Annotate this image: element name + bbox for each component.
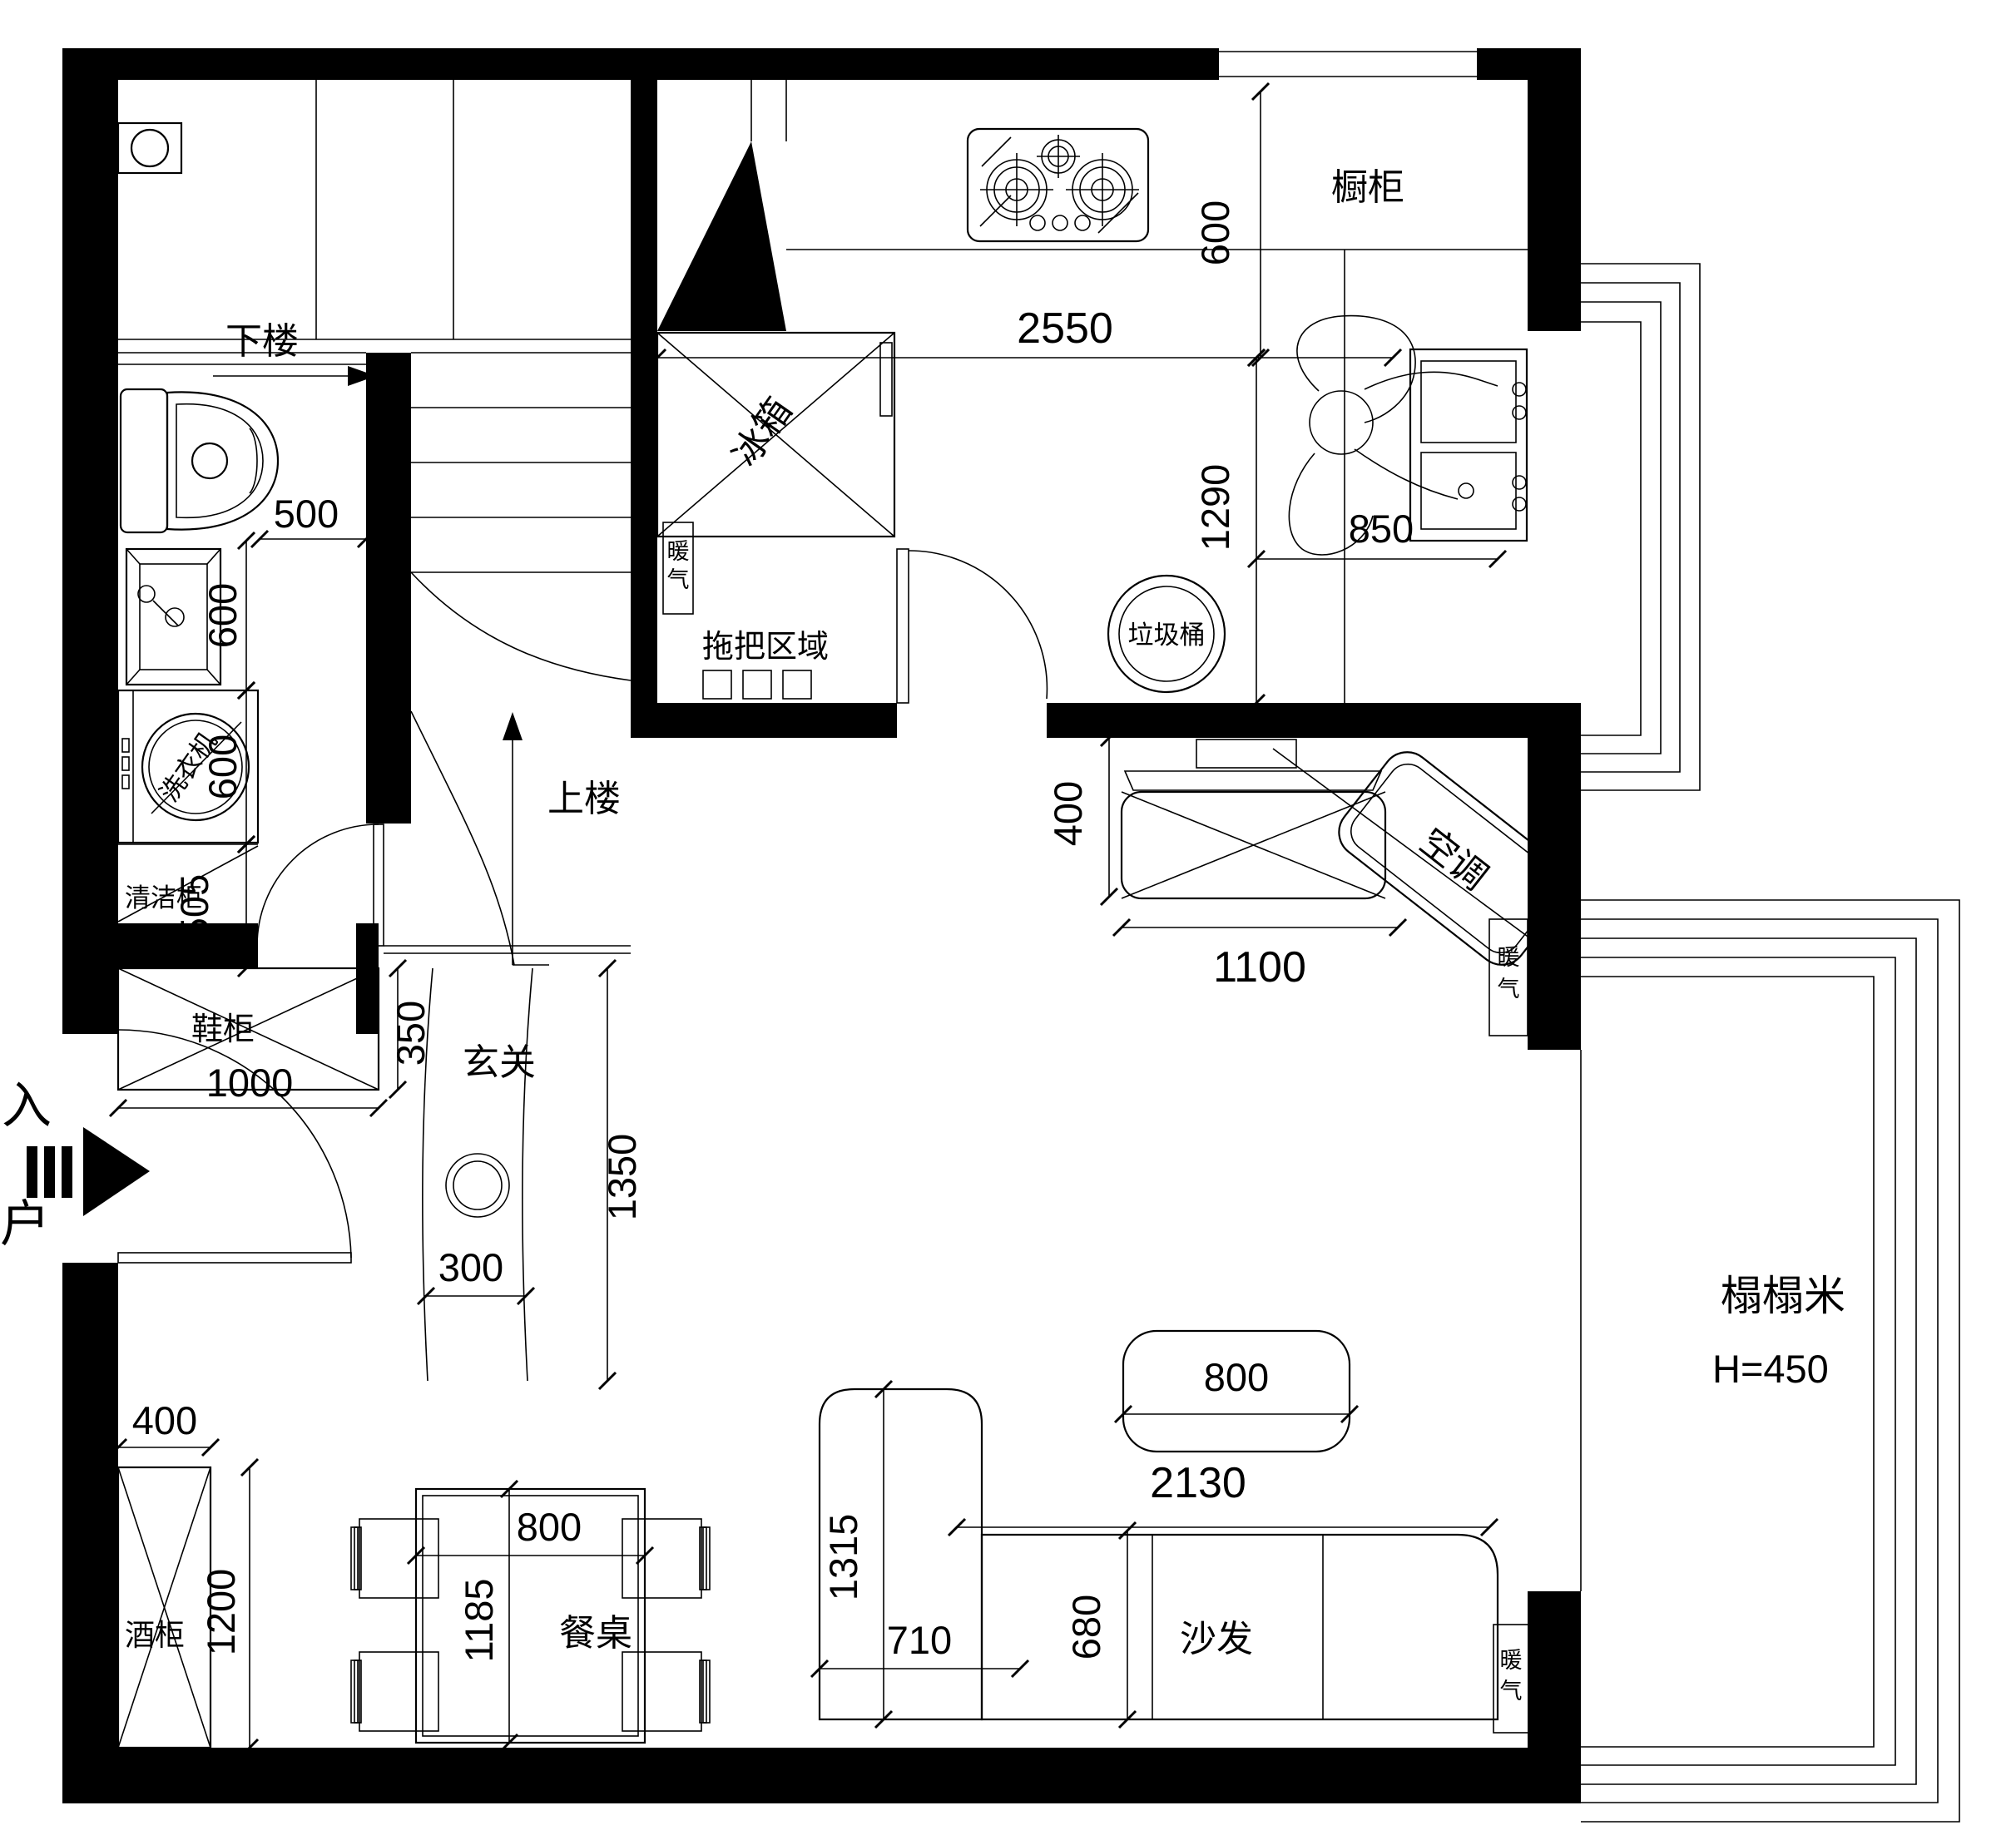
entry-char-2: 户 xyxy=(0,1196,50,1252)
dim-chaise-1315: 1315 xyxy=(821,1381,892,1728)
svg-text:800: 800 xyxy=(517,1505,582,1549)
toilet xyxy=(121,389,278,532)
dim-shoe-1000: 1000 xyxy=(110,1061,387,1116)
tv-unit xyxy=(1122,739,1385,898)
dining-chairs xyxy=(351,1519,710,1731)
wall-right-upper-column xyxy=(1528,80,1581,331)
kitchen-door xyxy=(897,549,1047,703)
tatami-label: 榻榻米 xyxy=(1721,1273,1845,1319)
dim-foyer-1350: 1350 xyxy=(599,960,644,1389)
floor-plan-page: 下楼 上楼 xyxy=(0,0,2016,1845)
wall-top xyxy=(62,48,1219,80)
radiator-label: 暖 xyxy=(667,539,690,564)
wall-kitchen-south-left xyxy=(631,703,897,738)
stairs-down-arrow xyxy=(213,366,376,386)
dim-tv-1100: 1100 xyxy=(1113,919,1406,992)
wall-right-lower-stub xyxy=(1528,1591,1581,1748)
stairs-down-label: 下楼 xyxy=(225,321,299,362)
kitchen-corner-shade xyxy=(657,141,786,331)
kitchen-bay-window xyxy=(1581,264,1700,790)
dim-sofa-2130: 2130 xyxy=(949,1459,1498,1536)
foyer-console: 玄关 xyxy=(423,968,536,1381)
skylight-circle xyxy=(131,130,168,166)
svg-text:800: 800 xyxy=(1204,1355,1269,1399)
kitchen-sink xyxy=(1410,349,1527,541)
radiator-label: 气 xyxy=(667,567,690,592)
dim-foyer-300: 300 xyxy=(418,1245,534,1304)
svg-text:2130: 2130 xyxy=(1150,1459,1246,1507)
shoe-cabinet-label: 鞋柜 xyxy=(191,1012,255,1047)
floor-plan-drawing: 下楼 上楼 xyxy=(0,0,2016,1845)
wall-bath-south xyxy=(62,923,258,968)
wall-left-upper xyxy=(62,80,118,1034)
svg-text:680: 680 xyxy=(1064,1595,1108,1660)
dim-sofa-680: 680 xyxy=(1064,1522,1136,1728)
tatami-height-label: H=450 xyxy=(1712,1347,1829,1391)
wall-foyer-stub xyxy=(356,923,379,1034)
svg-text:600: 600 xyxy=(201,583,245,648)
tatami-room: 榻榻米 H=450 xyxy=(1712,1273,1845,1391)
wall-left-lower xyxy=(62,1263,118,1748)
entry-char-1: 入 xyxy=(2,1078,52,1134)
stair-winder-arc-1 xyxy=(411,572,631,680)
wall-right-mid-column xyxy=(1528,703,1581,1050)
trash-bin: 垃圾桶 xyxy=(1108,576,1225,692)
basin-faucet xyxy=(138,586,155,602)
svg-text:1000: 1000 xyxy=(206,1061,294,1105)
basin-drain xyxy=(166,608,184,626)
dim-table-800: 800 xyxy=(408,1505,653,1564)
kitchen: 冰箱 橱柜 xyxy=(657,80,1528,703)
svg-text:400: 400 xyxy=(132,1398,197,1442)
dim-tv-400: 400 xyxy=(1046,730,1117,905)
balcony-radiator-lower: 暖 气 xyxy=(1493,1625,1529,1733)
dim-washer-600: 600 xyxy=(201,682,255,853)
bathroom-door xyxy=(257,824,631,953)
mop-area-label: 拖把区域 xyxy=(702,630,829,665)
fridge-label: 冰箱 xyxy=(725,391,800,474)
wall-bottom xyxy=(62,1748,1581,1803)
svg-text:600: 600 xyxy=(1193,200,1237,265)
svg-text:500: 500 xyxy=(274,492,339,536)
dim-wine-1200: 1200 xyxy=(199,1459,258,1756)
radiator-label: 气 xyxy=(1500,1679,1523,1704)
living-room: 空调 暖 气 暖 气 沙发 xyxy=(820,739,1580,1733)
svg-text:1350: 1350 xyxy=(600,1134,644,1221)
sofa-group: 沙发 xyxy=(820,1389,1498,1719)
radiator-label: 暖 xyxy=(1498,945,1520,970)
dining-table-label: 餐桌 xyxy=(559,1613,632,1654)
sofa-label: 沙发 xyxy=(1180,1619,1253,1660)
dim-chaise-710: 710 xyxy=(811,1618,1028,1677)
svg-text:2550: 2550 xyxy=(1017,304,1113,353)
dim-sink-850: 850 xyxy=(1248,507,1506,567)
dim-basin-600: 600 xyxy=(201,532,255,699)
ac-label: 空调 xyxy=(1412,821,1495,898)
balcony-radiator-upper: 暖 气 xyxy=(1489,919,1528,1036)
stairs-up-arrow xyxy=(503,712,549,965)
wall-kitchen-south-right xyxy=(1047,703,1528,738)
foyer-label: 玄关 xyxy=(463,1042,536,1083)
stair-winder-arc-2 xyxy=(411,711,514,965)
svg-text:1185: 1185 xyxy=(457,1578,501,1662)
svg-text:1200: 1200 xyxy=(199,1569,243,1656)
wine-cabinet-label: 酒柜 xyxy=(125,1618,185,1652)
dimensions: 500 600 600 505 2550 600 1290 850 400 11… xyxy=(110,83,1506,1756)
gas-stove xyxy=(968,129,1148,241)
fridge: 冰箱 xyxy=(657,333,894,537)
dim-kitchen-1290: 1290 xyxy=(1193,349,1265,711)
trash-label: 垃圾桶 xyxy=(1128,621,1206,650)
svg-text:350: 350 xyxy=(389,1001,433,1066)
dim-bath-500: 500 xyxy=(251,492,374,547)
svg-text:1315: 1315 xyxy=(821,1514,865,1601)
wall-bath-east xyxy=(366,353,411,824)
dim-table-1185: 1185 xyxy=(457,1481,518,1751)
wall-kitchen-west xyxy=(631,80,657,711)
radiator-label: 气 xyxy=(1498,977,1520,1002)
svg-text:710: 710 xyxy=(887,1618,952,1662)
radiator-label: 暖 xyxy=(1500,1648,1523,1673)
wall-top-right xyxy=(1477,48,1581,80)
mop-area: 拖把区域 xyxy=(702,630,829,699)
svg-text:300: 300 xyxy=(438,1245,503,1289)
svg-text:600: 600 xyxy=(201,735,245,799)
svg-text:400: 400 xyxy=(1046,781,1090,846)
dim-coffee-800: 800 xyxy=(1115,1355,1358,1422)
stairs-up-label: 上楼 xyxy=(547,779,621,819)
svg-text:850: 850 xyxy=(1349,507,1414,551)
dim-counter-600: 600 xyxy=(1193,83,1269,366)
svg-text:505: 505 xyxy=(172,874,216,939)
svg-text:1290: 1290 xyxy=(1193,464,1237,552)
dim-wine-400: 400 xyxy=(110,1398,219,1456)
wine-cabinet: 酒柜 xyxy=(118,1467,211,1748)
svg-text:1100: 1100 xyxy=(1213,943,1306,992)
kitchen-top-window xyxy=(1219,52,1477,77)
cupboard-label: 橱柜 xyxy=(1331,167,1404,208)
entry-marker: 入 户 xyxy=(0,1078,150,1252)
